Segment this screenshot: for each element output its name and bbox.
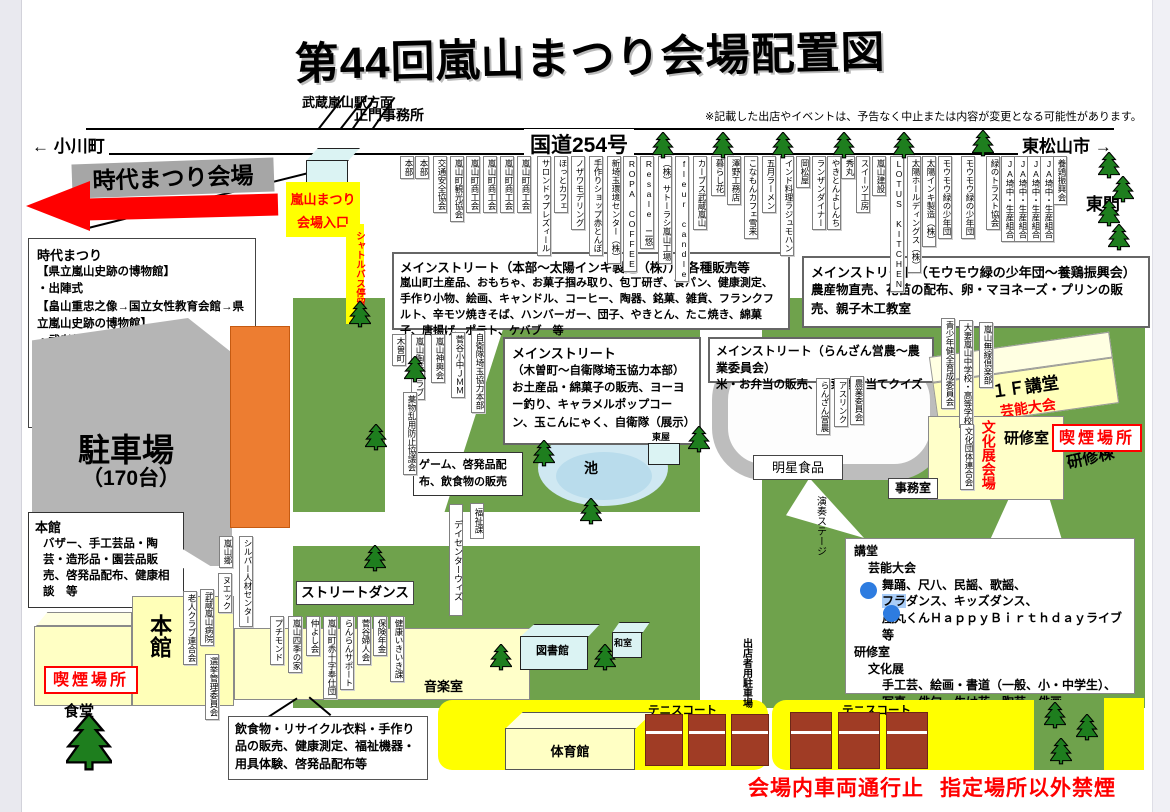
pine-tree-icon bbox=[688, 426, 710, 459]
left-labels-label: ヌエック bbox=[218, 573, 232, 613]
top-stall-label: 太陽インキ製造（株） bbox=[922, 156, 936, 247]
community-labels-label: プチモンド bbox=[270, 616, 284, 665]
pine-tree-icon bbox=[490, 644, 512, 677]
top-stall-label: カーブス武蔵嵐山 bbox=[693, 156, 707, 230]
ongakushitsu-label: 音楽室 bbox=[424, 676, 463, 695]
mainstreet4-box: メインストリート（らんざん営農～農業委員会） 米・お弁当の販売、野菜重さ当てクイ… bbox=[708, 337, 934, 383]
track-labels-label: 農業委員会 bbox=[850, 376, 864, 425]
bunkaten-label: 文化展会場 bbox=[981, 420, 996, 500]
honkan-building-roof bbox=[36, 612, 132, 626]
top-stall-label: 緑のトラスト協会 bbox=[986, 156, 1000, 230]
meisei-box: 明星食品 bbox=[753, 455, 843, 480]
honkan-big-label: 本館 bbox=[148, 614, 171, 658]
azumaya-label: 東屋 bbox=[652, 430, 670, 443]
mainstreet3-body: お土産品・綿菓子の販売、ヨーヨー釣り、キャラメルポップコーン、玉こんにゃく、自衛… bbox=[512, 380, 692, 432]
honkan-bubble-body: バザー、手工芸品・陶芸・造形品・園芸品販売、啓発品配布、健康相談 等 bbox=[35, 536, 177, 600]
community-labels-label: 仲よし会 bbox=[306, 616, 320, 656]
top-stall-label: 嵐山町商工会 bbox=[483, 156, 497, 213]
top-stall-label: ほっとカフェ bbox=[554, 156, 568, 213]
pine-tree-icon bbox=[772, 132, 794, 165]
hall-program-lines: 講堂芸能大会舞踊、尺八、民謡、歌謡、フラダンス、キッズダンス、嵐丸くんＨａｐｐｙ… bbox=[854, 543, 1126, 711]
selection-handle-start[interactable] bbox=[860, 582, 877, 599]
kenshushitsu-label: 研修室 bbox=[1004, 427, 1049, 448]
top-stall-label: 新埼玉環境センター（株） bbox=[607, 156, 621, 264]
page-title: 第44回嵐山まつり会場配置図 bbox=[249, 15, 930, 93]
community-labels-label: 健康いきいき課 bbox=[390, 616, 404, 682]
left-labels-label: 嵐山郷 bbox=[219, 536, 233, 568]
top-stall-label: ROPA COFFEE bbox=[623, 156, 637, 272]
hall-program-text: ダンス、キッズダンス、 bbox=[906, 594, 1038, 608]
mainstreet1-box: メインストリート（本部～太陽インキ製造（株）） 各種販売等 嵐山町土産品、おもち… bbox=[392, 252, 790, 330]
tennis-area-3 bbox=[1104, 698, 1144, 770]
pine-tree-icon bbox=[1076, 714, 1098, 747]
top-stall-label: 養鶏振興会 bbox=[1053, 156, 1067, 205]
no-smoking-notice: 指定場所以外禁煙 bbox=[940, 772, 1116, 802]
community-labels-label: 嵐山四季の家 bbox=[288, 616, 302, 673]
washitsu-label: 和室 bbox=[614, 636, 632, 649]
hall-program-line: 手工芸、絵画・書道（一般、小・中学生）、 bbox=[854, 677, 1126, 694]
gym-building: 体育館 bbox=[505, 728, 635, 770]
top-stall-label: こなもんカフェ雪来 bbox=[744, 156, 758, 239]
community-labels-label: 保険年金 bbox=[373, 616, 387, 656]
pine-tree-icon bbox=[66, 712, 112, 781]
community-labels-label: 嵐山町赤十字奉仕団 bbox=[323, 616, 337, 699]
right-labels-label: 青少年健全育成委員会 bbox=[941, 318, 955, 409]
top-stall-label: モウモウ緑の少年団 bbox=[938, 156, 952, 239]
pine-tree-icon bbox=[893, 132, 915, 165]
left-labels-label: 武蔵嵐山病院 bbox=[200, 589, 214, 646]
smoking-area-left: 喫煙場所 bbox=[44, 666, 138, 694]
jimushitsu-box: 事務室 bbox=[888, 478, 938, 499]
festival-map: 第44回嵐山まつり会場配置図 ※記載した出店やイベントは、予告なく中止または内容… bbox=[0, 0, 1170, 812]
tennis-court-icon bbox=[688, 714, 726, 766]
track-labels-label: らんざん営農 bbox=[816, 378, 830, 435]
mainstreet2-body: 農産物直売、花苗の配布、卵・マヨネーズ・プリンの販売、親子木工教室 bbox=[811, 281, 1141, 319]
top-stall-label: JA埼中・生産組合 bbox=[1014, 156, 1028, 242]
pine-tree-icon bbox=[1044, 702, 1066, 735]
top-stall-label: 嵐山町商工会 bbox=[517, 156, 531, 213]
parking-capacity: （170台） bbox=[82, 462, 180, 492]
hall-program-line: 舞踊、尺八、民謡、歌謡、 bbox=[854, 577, 1126, 594]
mainstreet1-title: メインストリート（本部～太陽インキ製造（株）） 各種販売等 bbox=[400, 257, 782, 276]
ogawamachi-label: ← 小川町 bbox=[28, 132, 109, 157]
top-stall-label: Resale 二悠 bbox=[640, 156, 654, 249]
shutten-parking-label: 出店者用駐車場 bbox=[740, 638, 751, 714]
pine-tree-icon bbox=[533, 440, 555, 473]
mainstreet3-subtitle: （木曽町～自衛隊埼玉協力本部） bbox=[512, 362, 692, 378]
top-stall-label: 本部 bbox=[400, 156, 414, 179]
daycenter-label: デイセンターウィズ bbox=[449, 504, 463, 616]
selection-handle-end[interactable] bbox=[883, 605, 900, 622]
top-stall-label: JA埼中・生産組合 bbox=[1040, 156, 1054, 242]
jidai-program-line: 【県立嵐山史跡の博物館】 bbox=[37, 264, 247, 281]
library-label: 図書館 bbox=[536, 642, 569, 658]
smoking-area-right: 喫煙場所 bbox=[1052, 424, 1142, 452]
mainstreet2-box: メインストリート（モウモウ緑の少年団～養鶏振興会） 農産物直売、花苗の配布、卵・… bbox=[802, 256, 1150, 328]
left-labels-label: 選挙管理委員会 bbox=[205, 654, 219, 720]
street-stalls-label: 菅谷小中ＪＭＭ bbox=[451, 332, 465, 398]
street-stalls-label: 嵐山神輿会 bbox=[431, 334, 445, 383]
honkan-bubble-title: 本館 bbox=[35, 517, 177, 536]
game-bubble: ゲーム、啓発品配布、飲食物の販売 bbox=[413, 452, 523, 496]
tennis-court-icon bbox=[731, 714, 769, 766]
right-labels-label: 大妻嵐山中学校・高等学校 bbox=[959, 320, 973, 428]
top-stall-label: ランザンダイナー bbox=[812, 156, 826, 230]
right-labels-label: 嵐山無線倶楽部 bbox=[979, 322, 993, 388]
main-gate-office-label: 正門事務所 bbox=[354, 105, 424, 125]
top-stall-label: 嵐山建設 bbox=[872, 156, 886, 196]
top-stall-label: JA埼中・生産組合 bbox=[1001, 156, 1015, 242]
hall-program-line: 講堂 bbox=[854, 543, 1126, 560]
pine-tree-icon bbox=[833, 132, 855, 165]
top-stall-label: （株）サトーラシ嵐山工場 bbox=[658, 156, 672, 264]
street-stalls-label: 薬物乱用防止協議会 bbox=[403, 392, 417, 475]
pond-label: 池 bbox=[584, 458, 598, 478]
top-stall-label: サロンドゥプレズィール bbox=[537, 156, 551, 256]
top-stall-label: fleur candle bbox=[675, 156, 689, 282]
top-stall-label: インド料理ラジュモハン bbox=[780, 156, 794, 256]
pine-tree-icon bbox=[404, 356, 426, 389]
top-stall-label: JA埼中・生産組合 bbox=[1027, 156, 1041, 242]
pine-tree-icon bbox=[1050, 738, 1072, 771]
jidai-arrow-head bbox=[26, 181, 90, 231]
mainstreet3-title: メインストリート bbox=[512, 343, 692, 362]
top-stall-label: 岡松屋 bbox=[796, 156, 810, 188]
jidai-banner: 時代まつり会場 bbox=[71, 157, 274, 198]
pine-tree-icon bbox=[972, 130, 994, 163]
hall-program-line: 文化展 bbox=[854, 661, 1126, 678]
pine-tree-icon bbox=[1108, 224, 1130, 257]
hall-program-line: 芸能大会 bbox=[854, 560, 1126, 577]
pine-tree-icon bbox=[652, 132, 674, 165]
jidai-arrow-shaft bbox=[86, 193, 279, 220]
pine-tree-icon bbox=[580, 498, 602, 531]
route254-label: 国道254号 bbox=[524, 129, 634, 159]
pine-tree-icon bbox=[712, 132, 734, 165]
top-stall-label: 手作りショップ赤とんぼ bbox=[589, 156, 603, 256]
azumaya-building bbox=[648, 443, 680, 465]
top-stall-label: モウモウ緑の少年団 bbox=[961, 156, 975, 239]
mainstreet3-box: メインストリート （木曽町～自衛隊埼玉協力本部） お土産品・綿菓子の販売、ヨーヨ… bbox=[503, 337, 701, 445]
left-labels-label: 老人クラブ連合会 bbox=[183, 591, 197, 665]
tennis-court-icon bbox=[886, 712, 928, 769]
community-labels-label: らんらんサポート bbox=[340, 616, 354, 690]
no-vehicles-notice: 会場内車両通行止 bbox=[748, 772, 924, 802]
top-stall-label: LOTUS KITCHEN bbox=[890, 156, 904, 292]
track-labels-label: アスリンク bbox=[834, 378, 848, 427]
pond-inner bbox=[556, 452, 652, 500]
jidai-program-title: 時代まつり bbox=[37, 245, 247, 264]
road-horizontal bbox=[293, 512, 705, 546]
mainstreet1-body: 嵐山町土産品、おもちゃ、お菓子掴み取り、包丁研ぎ、食パン、健康測定、手作り小物、… bbox=[400, 276, 782, 340]
orange-building bbox=[230, 326, 290, 528]
hall-program-line: 研修室 bbox=[854, 644, 1126, 661]
top-stall-label: ノザワモデリング bbox=[571, 156, 585, 230]
top-stall-label: 嵐山町商工会 bbox=[500, 156, 514, 213]
stage-label: 演奏ステージ bbox=[814, 496, 825, 580]
top-stall-label: 太陽ホールディングス（株） bbox=[907, 156, 921, 273]
pine-tree-icon bbox=[364, 545, 386, 578]
street-dance-box: ストリートダンス bbox=[296, 581, 414, 605]
taiikukan-label: 体育館 bbox=[506, 741, 634, 760]
top-stall-label: 嵐山町商工会 bbox=[466, 156, 480, 213]
tennis-court-icon bbox=[645, 714, 683, 766]
street-stalls-label: 自衛隊埼玉協力本部 bbox=[471, 330, 485, 413]
top-stall-label: 嵐山町観光協会 bbox=[450, 156, 464, 222]
left-bezel bbox=[0, 0, 22, 812]
pine-tree-icon bbox=[349, 301, 371, 334]
entrance-line1: 嵐山まつり bbox=[286, 189, 360, 208]
pine-tree-icon bbox=[365, 424, 387, 457]
left-labels-label: シルバー人材センター bbox=[239, 536, 253, 627]
jidai-program-line: ・出陣式 bbox=[37, 281, 247, 298]
mainstreet4-title: メインストリート（らんざん営農～農業委員会） bbox=[716, 342, 926, 376]
gym-roof bbox=[505, 712, 653, 729]
inshoku-box: 飲食物・リサイクル衣料・手作り品の販売、健康測定、福祉機器・用具体験、啓発品配布… bbox=[228, 716, 428, 780]
top-stall-label: 交通安全協会 bbox=[433, 156, 447, 213]
honkan-bubble: 本館 バザー、手工芸品・陶芸・造形品・園芸品販売、啓発品配布、健康相談 等 bbox=[28, 512, 184, 608]
tennis-court-icon bbox=[838, 712, 880, 769]
tennis-court-icon bbox=[790, 712, 832, 769]
top-stall-label: やきとんよしんち bbox=[827, 156, 841, 230]
disclaimer-note: ※記載した出店やイベントは、予告なく中止または内容が変更となる可能性があります。 bbox=[705, 108, 1165, 124]
top-stall-label: 本部 bbox=[415, 156, 429, 179]
mainstreet2-title: メインストリート（モウモウ緑の少年団～養鶏振興会） bbox=[811, 262, 1141, 281]
top-stall-label: スイーツ工房 bbox=[856, 156, 870, 213]
fukushika-label: 福祉課 bbox=[470, 503, 484, 539]
community-labels-label: 菅谷婦人会 bbox=[357, 616, 371, 665]
right-labels-label: 文化団体連合会 bbox=[960, 424, 974, 490]
